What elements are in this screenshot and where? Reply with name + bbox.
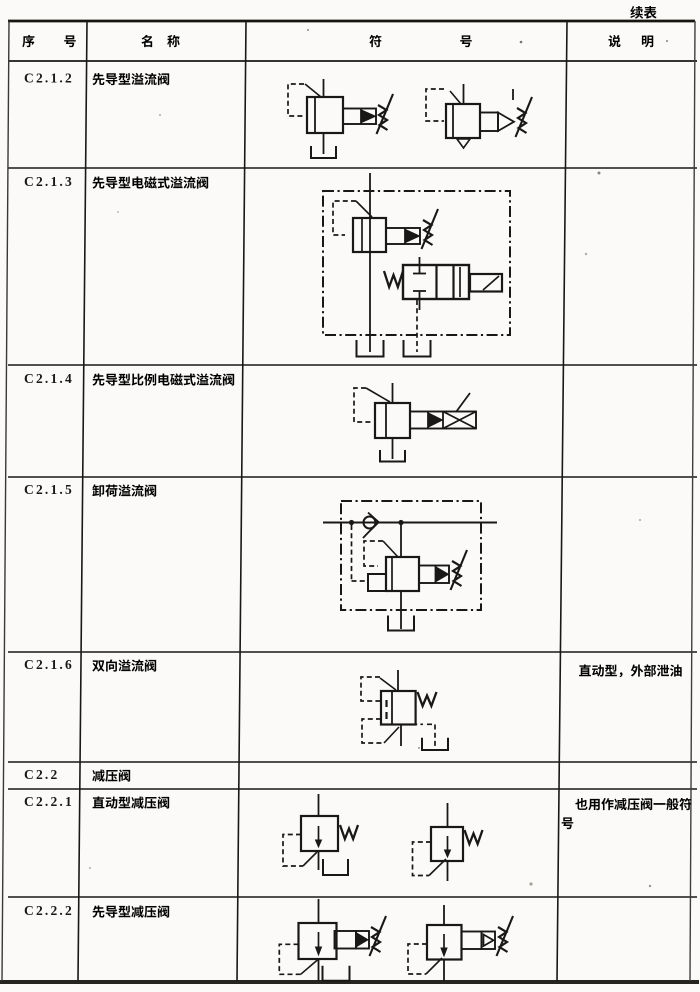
svg-text:C2.2: C2.2 — [24, 767, 59, 782]
svg-text:C2.1.4: C2.1.4 — [24, 371, 74, 386]
svg-text:C2.1.5: C2.1.5 — [24, 482, 74, 497]
svg-text:C2.2.2: C2.2.2 — [24, 903, 74, 918]
svg-text:C2.1.6: C2.1.6 — [24, 657, 74, 672]
svg-text:C2.2.1: C2.2.1 — [24, 794, 74, 809]
svg-text:C2.1.2: C2.1.2 — [24, 71, 74, 86]
svg-text:C2.1.3: C2.1.3 — [24, 174, 74, 189]
